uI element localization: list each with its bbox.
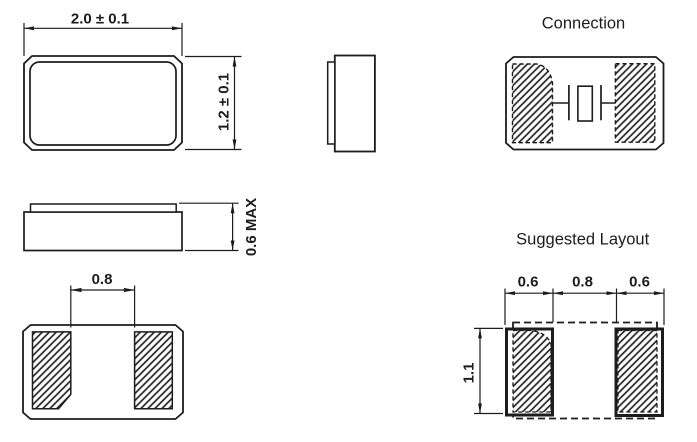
svg-text:1.1: 1.1: [461, 363, 478, 384]
svg-text:0.6: 0.6: [518, 273, 539, 290]
svg-text:Suggested Layout: Suggested Layout: [516, 231, 649, 249]
svg-text:Connection: Connection: [542, 15, 625, 33]
svg-text:0.8: 0.8: [92, 271, 113, 288]
svg-text:1.2 ± 0.1: 1.2 ± 0.1: [215, 73, 232, 131]
svg-text:0.8: 0.8: [572, 273, 593, 290]
svg-text:0.6: 0.6: [629, 273, 650, 290]
svg-text:0.6 MAX: 0.6 MAX: [243, 198, 260, 256]
svg-text:2.0 ± 0.1: 2.0 ± 0.1: [71, 11, 129, 28]
